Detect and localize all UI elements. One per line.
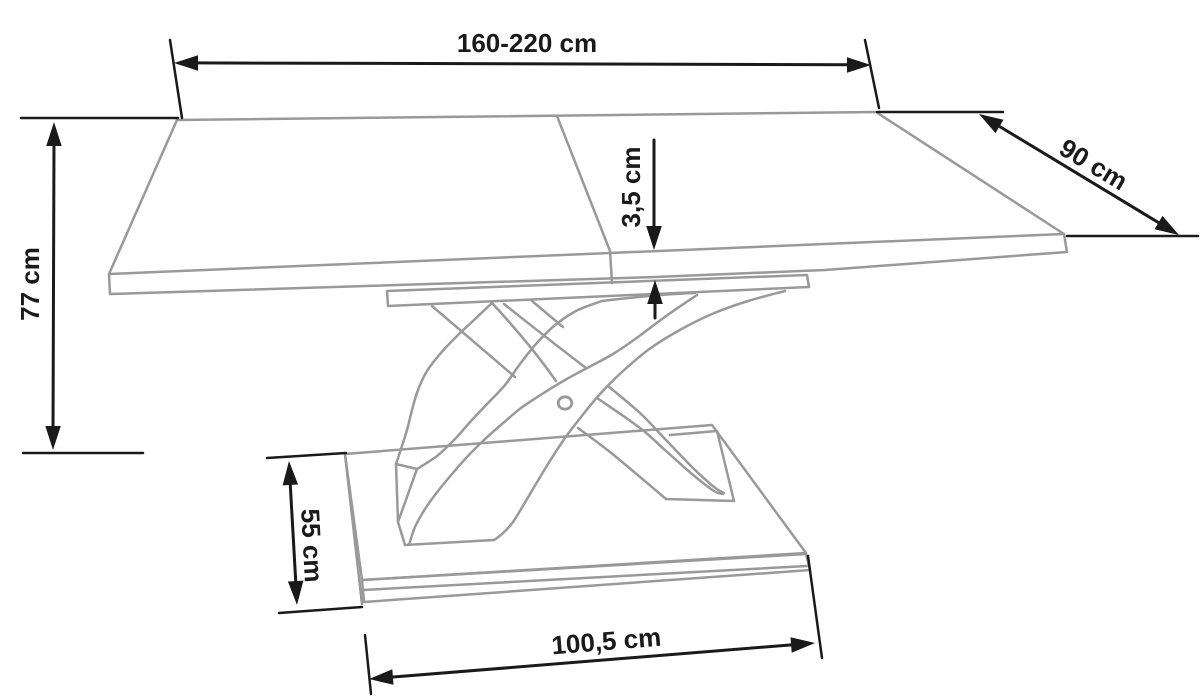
svg-text:3,5 cm: 3,5 cm xyxy=(616,147,646,228)
svg-text:160-220 cm: 160-220 cm xyxy=(457,28,597,58)
svg-text:90 cm: 90 cm xyxy=(1054,132,1133,196)
svg-text:55 cm: 55 cm xyxy=(295,508,329,583)
svg-text:77 cm: 77 cm xyxy=(15,247,45,321)
svg-text:100,5 cm: 100,5 cm xyxy=(550,622,662,661)
